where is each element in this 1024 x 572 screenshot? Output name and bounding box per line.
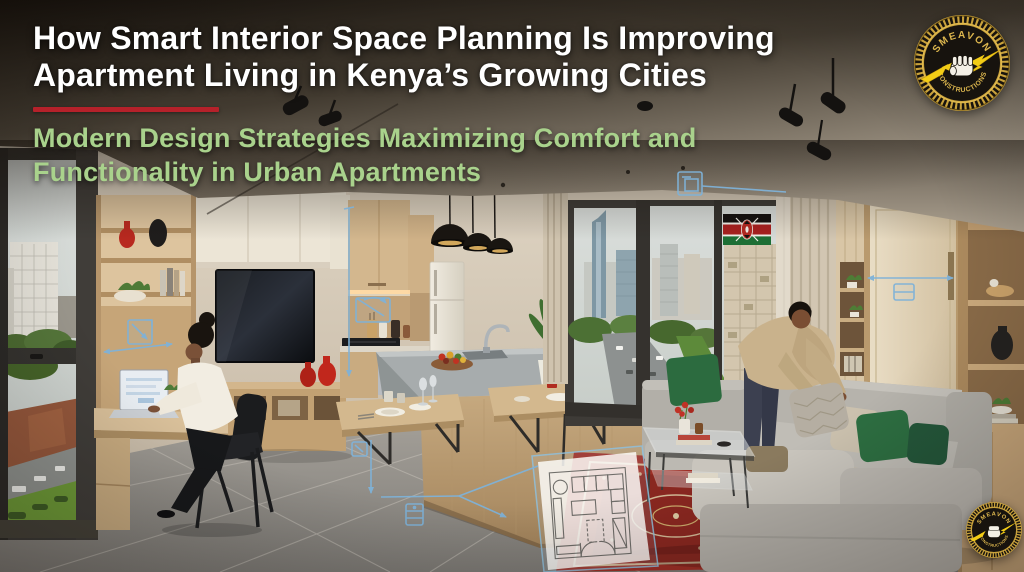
vignette-overlay [0, 0, 1024, 572]
brand-logo-badge-small: SMEAVON CONSTRUCTIONS [965, 501, 1023, 559]
brand-logo-badge: SMEAVON CONSTRUCTIONS [912, 13, 1012, 113]
blog-hero-graphic: How Smart Interior Space Planning Is Imp… [0, 0, 1024, 572]
fist-icon-small [988, 526, 1001, 538]
fist-icon [950, 56, 973, 77]
apartment-scene-illustration [0, 0, 1024, 572]
